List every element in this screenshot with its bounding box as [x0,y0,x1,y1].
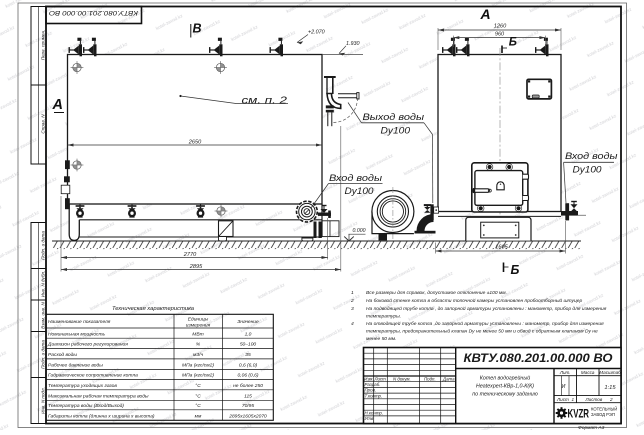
svg-text:Лист: Лист [556,397,569,402]
svg-text:1605: 1605 [495,245,508,251]
svg-text:Номинальная мощность: Номинальная мощность [48,332,106,338]
svg-text:И: И [562,384,566,390]
svg-text:Лит.: Лит. [559,370,571,375]
svg-text:0,6 (6,0): 0,6 (6,0) [239,362,258,368]
svg-text:температуры, предохранительный: температуры, предохранительный клапан Dу… [366,328,598,335]
svg-text:Лист: Лист [374,376,387,381]
svg-text:Дата: Дата [442,376,455,381]
svg-text:не более 250: не более 250 [233,383,263,389]
svg-text:Взам. инв. N: Взам. инв. N [41,301,46,328]
svg-text:Разраб.: Разраб. [365,382,381,387]
svg-text:Heatexpert-КВр-1,0-К(К): Heatexpert-КВр-1,0-К(К) [476,384,534,390]
svg-text:N докум.: N докум. [393,376,411,381]
svg-text:Dy100: Dy100 [345,186,374,196]
svg-text:мм: мм [195,414,202,419]
svg-text:2650: 2650 [188,139,202,145]
svg-text:°С: °С [195,403,201,409]
svg-text:Листов: Листов [585,397,603,402]
svg-text:Вход воды: Вход воды [329,173,382,183]
svg-text:МПа (кгс/см2): МПа (кгс/см2) [182,362,214,368]
svg-text:1260: 1260 [494,24,507,30]
svg-text:Инв. N дубл.: Инв. N дубл. [41,271,46,298]
svg-text:960: 960 [495,31,505,37]
svg-text:KVZR: KVZR [568,407,590,421]
svg-text:В: В [193,21,202,35]
svg-text:4: 4 [351,321,354,327]
svg-text:2: 2 [609,397,613,402]
svg-text:ЗАВОД РЭП: ЗАВОД РЭП [591,412,615,417]
svg-text:На отводящей трубе котла ,до з: На отводящей трубе котла ,до запорной ар… [366,320,604,327]
svg-text:КВТУ.080.201.00.000 ВО: КВТУ.080.201.00.000 ВО [464,351,614,365]
svg-text:МПа (кгс/см2): МПа (кгс/см2) [182,373,214,379]
svg-text:°С: °С [195,383,201,389]
svg-text:Справ. N: Справ. N [41,114,46,134]
svg-text:Подп.: Подп. [424,376,436,381]
svg-text:2895: 2895 [189,264,203,270]
svg-text:Температура уходящих газов: Температура уходящих газов [48,383,117,389]
svg-text:Т.контр.: Т.контр. [365,393,383,398]
svg-text:Диапазон рабочего регулировани: Диапазон рабочего регулирования [47,342,128,348]
svg-text:Инв. N подл.: Инв. N подл. [41,387,46,414]
svg-text:Все размеры для справок, допус: Все размеры для справок, допустимое откл… [366,290,507,296]
svg-text:На боковой стенке котла в обла: На боковой стенке котла в области топочн… [366,297,582,304]
svg-text:Утв.: Утв. [365,416,375,421]
svg-text:Масштаб: Масштаб [599,370,621,375]
svg-text:КОТЕЛЬНЫЙ: КОТЕЛЬНЫЙ [591,407,617,412]
svg-text:Подп. и дата: Подп. и дата [41,231,46,260]
svg-text:1: 1 [572,397,575,402]
svg-text:менее 50 мм.: менее 50 мм. [366,336,396,342]
svg-text:0,06 (0,6): 0,06 (0,6) [238,373,259,379]
svg-text:На подводящей трубе котла ,: На подводящей трубе котла , до запорной … [366,305,607,312]
svg-text:Рабочее давление воды: Рабочее давление воды [48,362,103,368]
svg-text:измерения: измерения [186,323,211,328]
svg-text:1.930: 1.930 [346,41,360,47]
svg-text:температуры.: температуры. [366,315,401,320]
svg-text:Подп. и дата: Подп. и дата [41,340,46,369]
svg-text:Температура воды (Вход/Выход): Температура воды (Вход/Выход) [48,403,124,409]
svg-text:115: 115 [244,393,252,399]
svg-text:Котел водогрейный: Котел водогрейный [480,375,530,382]
svg-text:Масса: Масса [581,370,595,375]
svg-text:+2.070: +2.070 [308,30,325,36]
svg-text:Пров.: Пров. [365,388,377,393]
svg-text:2: 2 [350,298,354,304]
svg-text:Наименование показателя: Наименование показателя [48,319,111,325]
svg-text:Перв. примен.: Перв. примен. [41,30,46,61]
svg-text:°С: °С [195,393,201,399]
svg-text:Формат А3: Формат А3 [578,425,605,430]
svg-text:КВТУ.080.201.00.000 ВО: КВТУ.080.201.00.000 ВО [48,9,138,16]
svg-text:Вход воды: Вход воды [565,151,618,161]
svg-text:Техническая характеристика: Техническая характеристика [112,306,195,312]
svg-text:%: % [196,342,201,348]
svg-text:0.000: 0.000 [353,228,366,234]
svg-text:2770: 2770 [183,252,197,258]
svg-text:70/95: 70/95 [242,403,255,409]
svg-text:3: 3 [351,306,354,312]
svg-text:А: А [52,97,63,113]
svg-text:Габариты котла (длинна х ширин: Габариты котла (длинна х ширина х высота… [48,413,155,419]
svg-text:Расход воды: Расход воды [48,352,77,358]
svg-text:Единицы: Единицы [188,317,209,323]
svg-text:МВт: МВт [192,332,203,338]
svg-text:Выход воды: Выход воды [363,112,425,122]
svg-text:Б: Б [509,37,517,49]
svg-text:Изм.: Изм. [364,376,373,381]
svg-text:1:15: 1:15 [604,385,616,391]
svg-text:Б: Б [511,263,520,277]
svg-text:1: 1 [351,290,354,296]
svg-text:1,0: 1,0 [245,332,252,338]
svg-text:2895х1605х2070: 2895х1605х2070 [228,413,267,419]
svg-text:Dy100: Dy100 [573,165,602,175]
svg-text:м3/ч: м3/ч [193,352,203,358]
svg-text:35: 35 [245,352,251,358]
svg-text:Н.контр.: Н.контр. [365,411,384,416]
svg-text:см. п. 2: см. п. 2 [242,96,288,107]
svg-text:Максимальная рабочая температу: Максимальная рабочая температура воды [48,393,149,399]
svg-text:А: А [480,6,491,22]
svg-text:Гидравлическое сопротивление к: Гидравлическое сопротивление котла [48,373,138,379]
svg-text:50–100: 50–100 [240,342,257,348]
svg-text:по техническому заданию: по техническому заданию [472,392,537,398]
svg-text:Значение: Значение [237,319,259,325]
svg-text:Dy100: Dy100 [381,126,411,136]
